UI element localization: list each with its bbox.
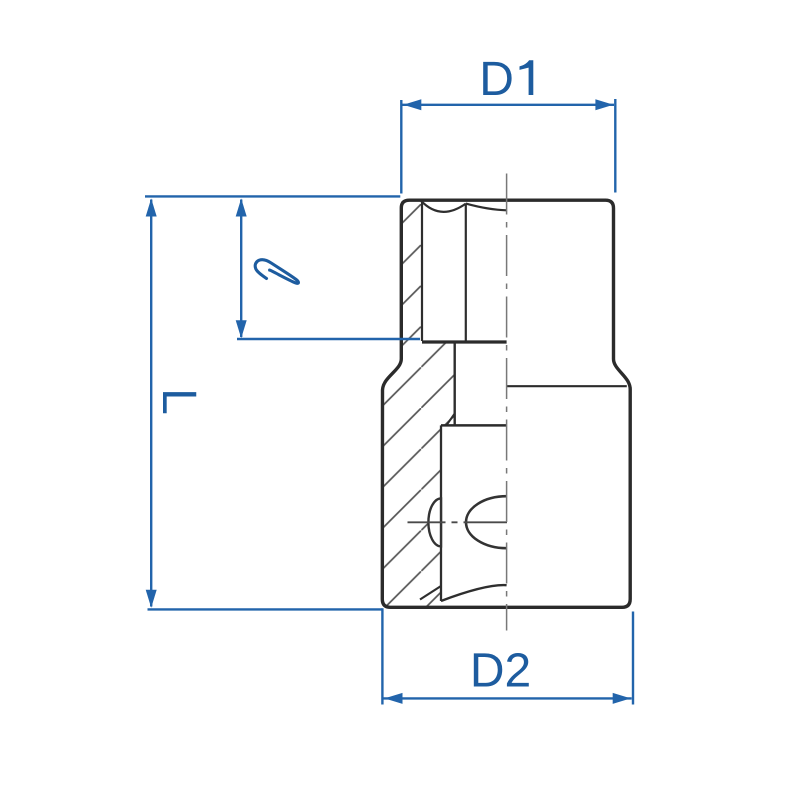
- svg-text:D2: D2: [470, 645, 531, 698]
- svg-text:D: D: [479, 53, 514, 106]
- svg-text:L: L: [152, 388, 205, 415]
